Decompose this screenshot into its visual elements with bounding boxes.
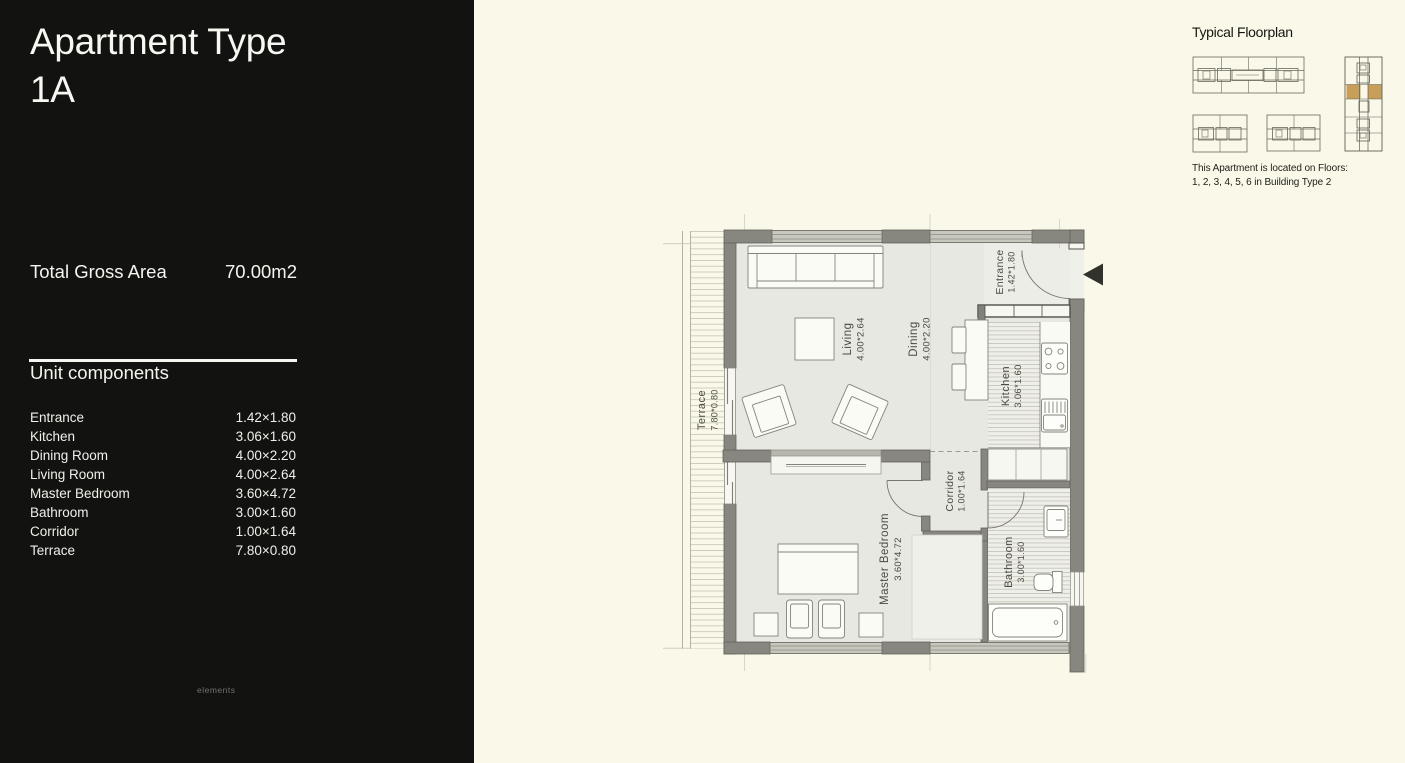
svg-text:Entrance1.42*1.80: Entrance1.42*1.80 bbox=[994, 249, 1017, 294]
svg-text:Terrace7.80*0.80: Terrace7.80*0.80 bbox=[696, 389, 720, 430]
svg-text:Corridor1.00*1.64: Corridor1.00*1.64 bbox=[944, 470, 967, 511]
svg-text:Bathroom3.00*1.60: Bathroom3.00*1.60 bbox=[1003, 536, 1026, 588]
